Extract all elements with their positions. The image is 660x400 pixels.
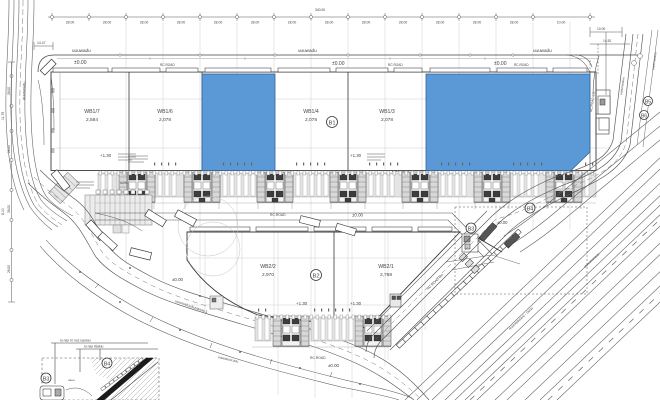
svg-text:B3: B3 — [468, 227, 475, 233]
svg-text:+1.30: +1.30 — [296, 301, 308, 306]
svg-text:iu nax rn nuz uaoluu: iu nax rn nuz uaoluu — [60, 339, 91, 343]
svg-text:28.00: 28.00 — [103, 21, 112, 25]
svg-text:28.00: 28.00 — [399, 21, 408, 25]
svg-text:2,584: 2,584 — [86, 117, 98, 123]
svg-text:28.00: 28.00 — [66, 21, 75, 25]
svg-text:B3: B3 — [43, 377, 50, 383]
svg-text:B6: B6 — [641, 113, 647, 119]
svg-text:RC.ROAD: RC.ROAD — [160, 63, 175, 67]
svg-text:iu nax r6aluu: iu nax r6aluu — [84, 345, 104, 349]
svg-text:2,768: 2,768 — [380, 272, 392, 278]
svg-text:B5: B5 — [645, 99, 651, 105]
svg-text:28.00: 28.00 — [288, 21, 297, 25]
svg-text:2,078: 2,078 — [159, 117, 171, 123]
svg-text:14.52: 14.52 — [603, 39, 611, 43]
svg-text:WB2/2: WB2/2 — [260, 264, 276, 270]
svg-text:2,078: 2,078 — [305, 117, 317, 123]
svg-text:±0.00: ±0.00 — [172, 277, 184, 282]
svg-text:WB1/4: WB1/4 — [303, 109, 319, 115]
svg-text:2,078: 2,078 — [381, 117, 393, 123]
svg-text:+1.30: +1.30 — [350, 301, 362, 306]
svg-text:28.00: 28.00 — [325, 21, 334, 25]
svg-text:GATE: GATE — [120, 181, 128, 185]
svg-text:uauu: uauu — [68, 378, 75, 382]
svg-text:RC.ROAD: RC.ROAD — [388, 63, 403, 67]
svg-text:2,970: 2,970 — [262, 272, 274, 278]
svg-text:B4: B4 — [104, 362, 111, 368]
svg-text:±0.00: ±0.00 — [497, 220, 508, 225]
svg-text:28.00: 28.00 — [473, 21, 482, 25]
svg-text:28.00: 28.00 — [436, 21, 445, 25]
svg-text:WB2/1: WB2/1 — [378, 264, 394, 270]
svg-text:RC.ROAD: RC.ROAD — [514, 63, 529, 67]
svg-text:28.00: 28.00 — [214, 21, 223, 25]
svg-text:WB1/6: WB1/6 — [157, 109, 173, 115]
svg-text:28.00: 28.00 — [362, 21, 371, 25]
svg-text:uuuwadu: uuuwadu — [533, 48, 552, 53]
svg-text:uuuwadu: uuuwadu — [72, 48, 91, 53]
svg-text:B2: B2 — [312, 274, 319, 280]
svg-text:10.00: 10.00 — [557, 21, 566, 25]
svg-text:uuunwadu: uuunwadu — [21, 81, 27, 100]
svg-text:340.00: 340.00 — [315, 8, 325, 12]
svg-text:WB1/7: WB1/7 — [84, 109, 100, 115]
svg-text:28.00: 28.00 — [510, 21, 519, 25]
svg-text:±0.00: ±0.00 — [74, 60, 87, 66]
svg-text:±0.00: ±0.00 — [352, 213, 364, 218]
svg-text:28.00: 28.00 — [7, 265, 11, 273]
svg-text:B1: B1 — [328, 121, 335, 127]
svg-text:28.00: 28.00 — [177, 21, 186, 25]
svg-text:28.00: 28.00 — [7, 205, 11, 213]
svg-text:+1.30: +1.30 — [350, 153, 362, 158]
svg-text:uuuwadu: uuuwadu — [298, 48, 317, 53]
svg-text:14.47: 14.47 — [37, 41, 46, 45]
svg-text:WB1/3: WB1/3 — [379, 109, 395, 115]
svg-text:28.00: 28.00 — [140, 21, 149, 25]
svg-text:11.75: 11.75 — [1, 112, 5, 120]
svg-text:±0.00: ±0.00 — [332, 61, 345, 67]
svg-text:28.00: 28.00 — [251, 21, 260, 25]
svg-text:B4: B4 — [527, 207, 534, 213]
svg-text:RC.ROAD: RC.ROAD — [270, 213, 286, 217]
svg-text:±0.00: ±0.00 — [494, 61, 507, 67]
svg-text:8.00: 8.00 — [1, 208, 5, 215]
svg-text:RC.ROAD: RC.ROAD — [310, 356, 326, 360]
svg-text:±0.00: ±0.00 — [328, 363, 340, 368]
svg-text:28.00: 28.00 — [7, 87, 11, 95]
svg-text:10.00: 10.00 — [597, 27, 605, 31]
svg-text:+1.30: +1.30 — [100, 153, 112, 158]
